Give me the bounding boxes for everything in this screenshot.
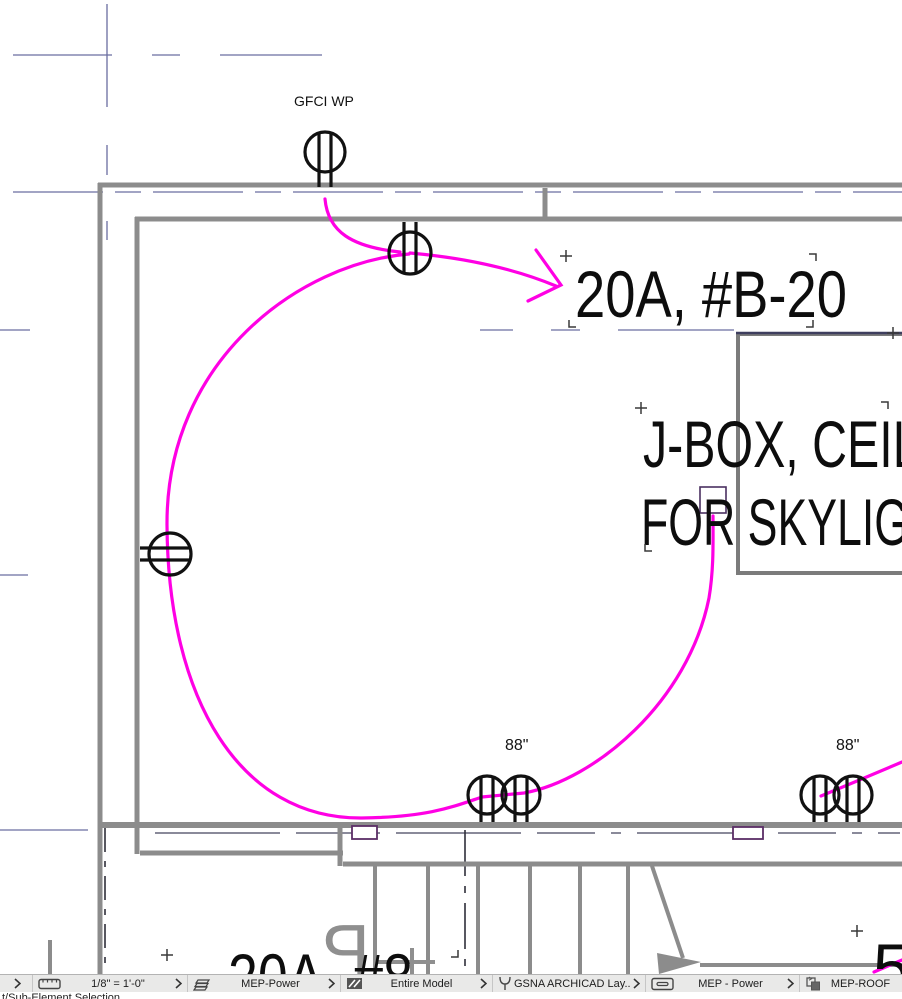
statusbar-layout-segment[interactable]: GSNA ARCHICAD Lay... <box>493 975 646 992</box>
wall-fixture-box-2[interactable] <box>733 827 763 839</box>
statusbar-paste-segment[interactable]: MEP-ROOF <box>800 975 902 992</box>
wall-fixture-box-1[interactable] <box>352 826 377 839</box>
stair-direction-line <box>652 866 683 958</box>
stair-treads <box>375 866 683 975</box>
receptacle-pair-right[interactable] <box>801 776 872 822</box>
archicad-plan-window: P <box>0 0 902 999</box>
handle-plus-4 <box>851 925 863 937</box>
jbox-label-line1[interactable]: J-BOX, CEILI <box>643 407 902 481</box>
chevron-right-icon <box>328 978 335 989</box>
ruler-icon <box>38 978 61 990</box>
chevron-right-icon <box>14 978 21 989</box>
receptacle-top-inner[interactable] <box>389 222 431 274</box>
display-frame-icon <box>651 977 674 991</box>
chevron-right-icon <box>175 978 182 989</box>
layers-label: MEP-Power <box>215 978 326 990</box>
model-filter-label: Entire Model <box>365 978 478 990</box>
chevron-right-icon <box>480 978 487 989</box>
chevron-right-icon <box>633 978 640 989</box>
status-bar: 1/8" = 1'-0" MEP-Power Entire Model <box>0 974 902 992</box>
handle-plus-5 <box>161 949 173 961</box>
plan-canvas[interactable]: P <box>0 0 902 999</box>
handle-tick-6 <box>451 950 458 957</box>
view-label: MEP - Power <box>676 978 785 990</box>
chevron-right-icon <box>787 978 794 989</box>
receptacle-gfci[interactable] <box>305 132 345 187</box>
mount-height-label-left[interactable]: 88" <box>505 737 528 754</box>
statusbar-layers-segment[interactable]: MEP-Power <box>188 975 341 992</box>
scale-label: 1/8" = 1'-0" <box>63 978 173 990</box>
handle-plus-3 <box>887 327 899 339</box>
hatch-icon <box>346 977 363 990</box>
statusbar-model-filter-segment[interactable]: Entire Model <box>341 975 493 992</box>
statusbar-view-segment[interactable]: MEP - Power <box>646 975 800 992</box>
jbox-label-line2[interactable]: FOR SKYLIG <box>641 485 902 559</box>
mount-height-label-right[interactable]: 88" <box>836 737 859 754</box>
handle-plus-1 <box>560 250 572 262</box>
statusbar-scale-segment[interactable]: 1/8" = 1'-0" <box>33 975 188 992</box>
layers-icon <box>193 977 213 991</box>
bottom-caption-strip: t/Sub-Element Selection <box>0 992 902 999</box>
copy-icon <box>805 976 822 991</box>
layout-label: GSNA ARCHICAD Lay... <box>514 978 631 990</box>
stair-arrow-head <box>657 953 701 974</box>
partial-caption: t/Sub-Element Selection <box>0 992 902 999</box>
wire-arrow-head <box>528 250 561 301</box>
statusbar-prev-chevron[interactable] <box>0 975 33 992</box>
paste-target-label: MEP-ROOF <box>824 978 897 990</box>
receptacle-left-wall[interactable] <box>140 533 191 575</box>
wire-gfci-to-receptacle[interactable] <box>325 199 400 252</box>
pen-set-icon <box>498 976 512 991</box>
wire-home-run-loop[interactable] <box>167 254 713 818</box>
gfci-label[interactable]: GFCI WP <box>294 93 354 109</box>
circuit-label[interactable]: 20A, #B-20 <box>575 257 847 331</box>
